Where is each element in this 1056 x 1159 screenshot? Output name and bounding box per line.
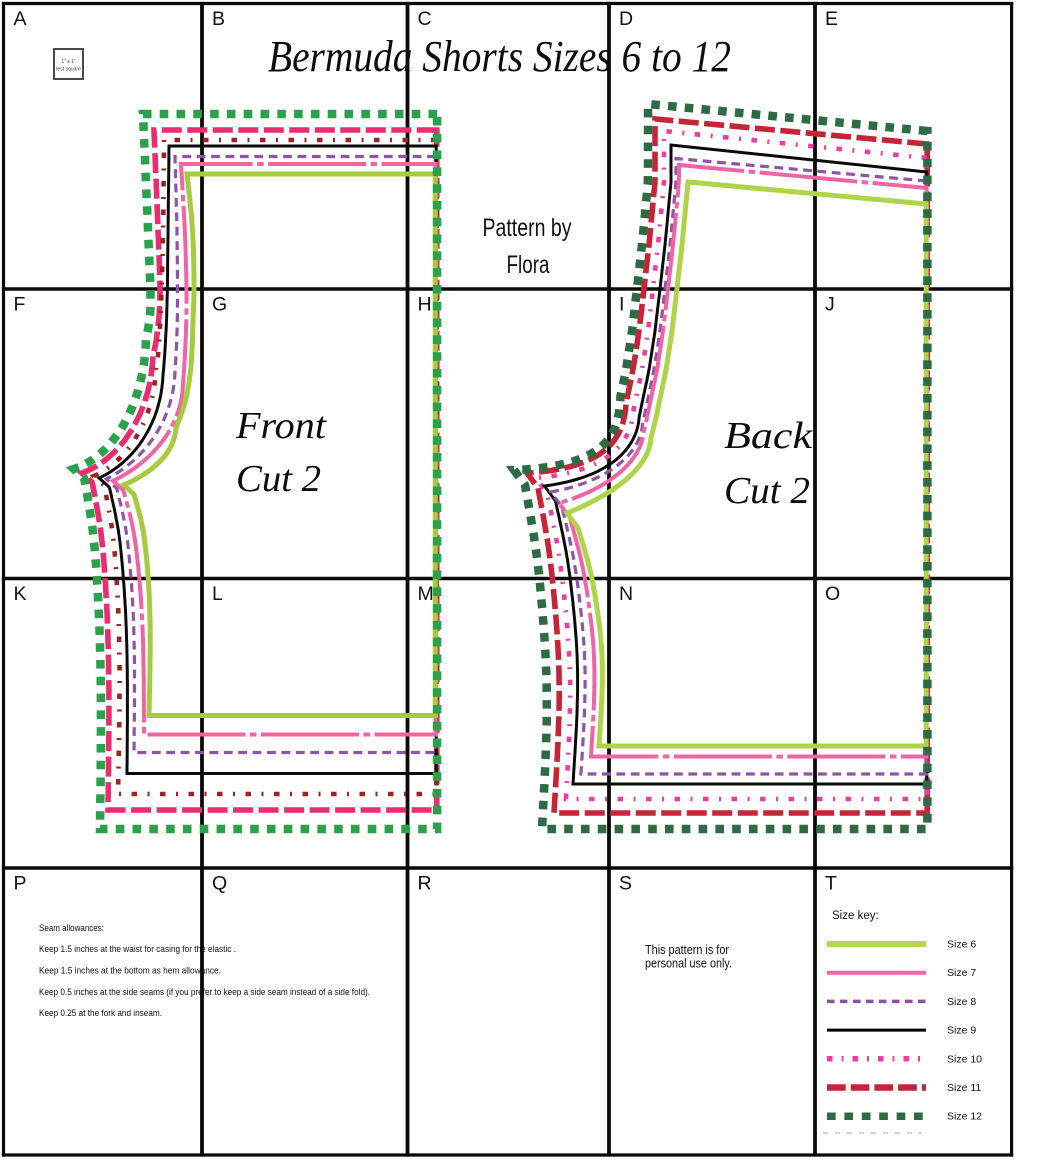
svg-text:D: D <box>619 8 633 30</box>
svg-text:A: A <box>14 8 27 30</box>
svg-text:O: O <box>825 583 840 605</box>
svg-text:J: J <box>825 294 835 316</box>
svg-text:Cut 2: Cut 2 <box>724 470 810 512</box>
svg-text:G: G <box>212 294 227 316</box>
svg-text:Flora: Flora <box>507 251 550 279</box>
svg-text:L: L <box>212 583 223 605</box>
svg-text:Size 7: Size 7 <box>947 967 976 979</box>
svg-text:Keep 0.25 at the fork and inse: Keep 0.25 at the fork and inseam. <box>39 1008 162 1018</box>
svg-text:Keep 1.5 inches at the bottom: Keep 1.5 inches at the bottom as hem all… <box>39 966 221 976</box>
svg-text:Pattern by: Pattern by <box>483 214 572 242</box>
svg-text:Size 8: Size 8 <box>947 996 976 1008</box>
svg-text:Size 6: Size 6 <box>947 939 976 951</box>
svg-text:test square: test square <box>56 67 81 73</box>
svg-text:M: M <box>418 583 434 605</box>
svg-text:B: B <box>212 8 225 30</box>
svg-text:Keep 0.5 inches at the side se: Keep 0.5 inches at the side seams (if yo… <box>39 987 370 997</box>
svg-text:Size 11: Size 11 <box>947 1082 981 1094</box>
svg-text:Seam allowances:: Seam allowances: <box>39 923 104 933</box>
svg-text:Front: Front <box>235 405 328 447</box>
svg-text:Bermuda Shorts Sizes 6 to 12: Bermuda Shorts Sizes 6 to 12 <box>268 32 731 81</box>
svg-text:personal use only.: personal use only. <box>645 956 732 971</box>
svg-text:Size key:: Size key: <box>832 910 879 922</box>
svg-text:C: C <box>418 8 432 30</box>
svg-text:N: N <box>619 583 633 605</box>
svg-text:K: K <box>14 583 27 605</box>
svg-text:Q: Q <box>212 873 227 895</box>
svg-text:T: T <box>825 873 837 895</box>
svg-text:Size 9: Size 9 <box>947 1025 976 1037</box>
svg-text:P: P <box>14 873 27 895</box>
svg-text:Back: Back <box>724 415 813 457</box>
svg-text:Size 12: Size 12 <box>947 1111 982 1123</box>
svg-text:Cut 2: Cut 2 <box>236 458 321 500</box>
svg-text:F: F <box>14 294 26 316</box>
svg-text:Size 10: Size 10 <box>947 1053 982 1065</box>
svg-text:1” x 1”: 1” x 1” <box>61 59 76 65</box>
svg-text:I: I <box>619 294 624 316</box>
svg-text:R: R <box>418 873 432 895</box>
svg-text:E: E <box>825 8 838 30</box>
svg-text:H: H <box>418 294 432 316</box>
svg-text:Keep 1.5 inches at the waist f: Keep 1.5 inches at the waist for casing … <box>39 944 236 954</box>
svg-text:S: S <box>619 873 632 895</box>
